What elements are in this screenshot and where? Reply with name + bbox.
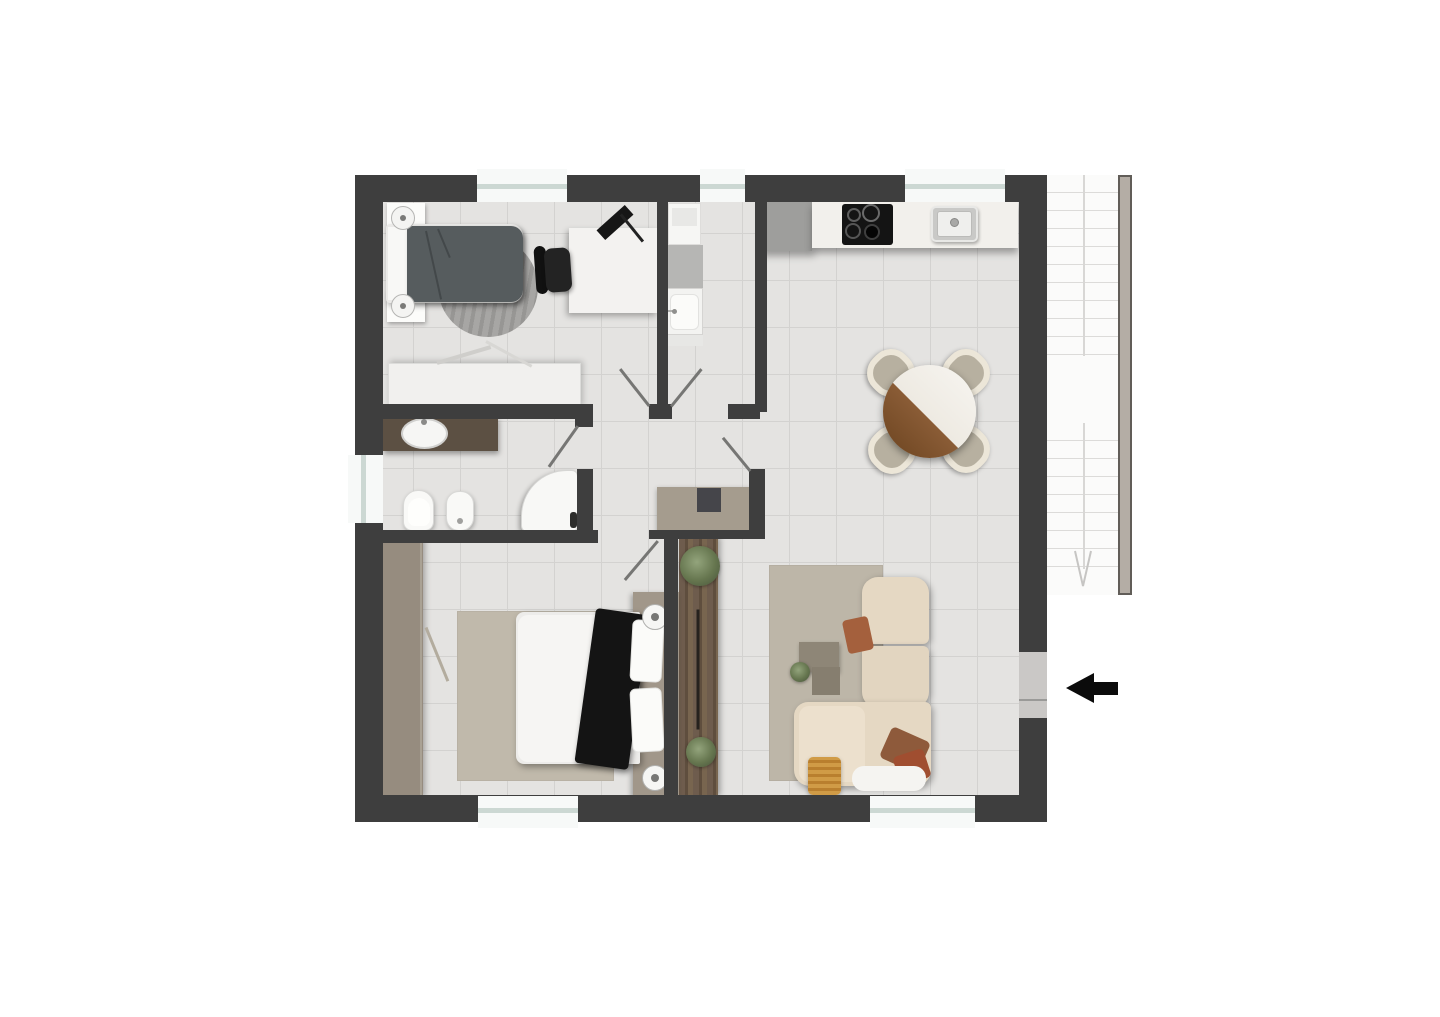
bedroom1-bed-duvet bbox=[407, 226, 523, 302]
wall-hall-living bbox=[749, 469, 765, 539]
wall-utility-left bbox=[657, 202, 668, 412]
staircase-railing bbox=[1118, 175, 1132, 595]
plant bbox=[686, 737, 716, 767]
window-glass-line bbox=[870, 808, 975, 813]
bedroom1-table-lamp-dot bbox=[400, 303, 406, 309]
sofa-back-cushion bbox=[862, 646, 929, 708]
office-chair-seat bbox=[543, 247, 572, 293]
staircase-center-line-upper bbox=[1083, 175, 1085, 356]
bedroom2-wardrobe-edge bbox=[420, 539, 422, 797]
window-glass-line bbox=[478, 808, 578, 813]
wall-utility-right bbox=[755, 202, 767, 412]
cooktop-burner bbox=[847, 208, 861, 222]
wall-exterior-right bbox=[1019, 175, 1047, 822]
entry-wardrobe-box bbox=[697, 488, 721, 512]
kitchen-tall-cabinet bbox=[760, 202, 812, 251]
utility-shelf bbox=[667, 335, 703, 346]
bedroom2-table-lamp-dot bbox=[651, 613, 659, 621]
entrance-arrow-shaft bbox=[1092, 682, 1118, 695]
utility-washer-lid bbox=[672, 208, 697, 226]
console-handle bbox=[697, 609, 700, 729]
bidet-faucet-dot bbox=[457, 518, 463, 524]
wall-bathroom-south bbox=[383, 530, 598, 543]
wall-bedroom1-south-cap bbox=[575, 404, 593, 427]
entrance-door-line bbox=[1019, 699, 1047, 701]
wall-utility-right-flange bbox=[728, 404, 760, 419]
bidet bbox=[446, 491, 474, 531]
wall-utility-left-flange bbox=[649, 404, 672, 419]
sofa-base bbox=[852, 766, 926, 791]
shower-handle bbox=[570, 512, 577, 528]
sofa-back-cushion bbox=[862, 577, 929, 644]
window-glass-line bbox=[905, 184, 1005, 189]
utility-faucet-dot bbox=[672, 309, 677, 314]
coffee-table bbox=[812, 667, 840, 695]
bathroom-faucet-dot bbox=[421, 419, 427, 425]
kitchen-faucet-dot bbox=[950, 218, 959, 227]
bedroom1-table-lamp-dot bbox=[400, 215, 406, 221]
wall-bedroom1-south bbox=[383, 404, 584, 419]
bedroom1-desk bbox=[569, 228, 658, 313]
plant bbox=[790, 662, 810, 682]
entrance-arrow-head bbox=[1066, 673, 1094, 703]
bedroom2-table-lamp-dot bbox=[651, 774, 659, 782]
wall-bedroom2-east bbox=[664, 530, 678, 795]
bedroom1-sideboard bbox=[388, 363, 581, 408]
window-glass-line bbox=[700, 184, 745, 189]
plant bbox=[680, 546, 720, 586]
entrance-opening bbox=[1019, 652, 1047, 718]
dining-table bbox=[883, 365, 976, 458]
window-glass-line bbox=[361, 455, 366, 523]
cooktop-burner bbox=[845, 223, 861, 239]
side-stool bbox=[808, 757, 841, 795]
cooktop-burner bbox=[862, 204, 880, 222]
cooktop-burner bbox=[864, 224, 880, 240]
floor-plan-canvas bbox=[0, 0, 1440, 1017]
toilet-bowl bbox=[408, 498, 430, 526]
utility-counter bbox=[667, 245, 703, 289]
window-glass-line bbox=[477, 184, 567, 189]
bedroom2-wardrobe bbox=[383, 539, 423, 797]
bedroom2-pillow bbox=[629, 687, 664, 753]
staircase-center-line-lower bbox=[1083, 423, 1085, 569]
